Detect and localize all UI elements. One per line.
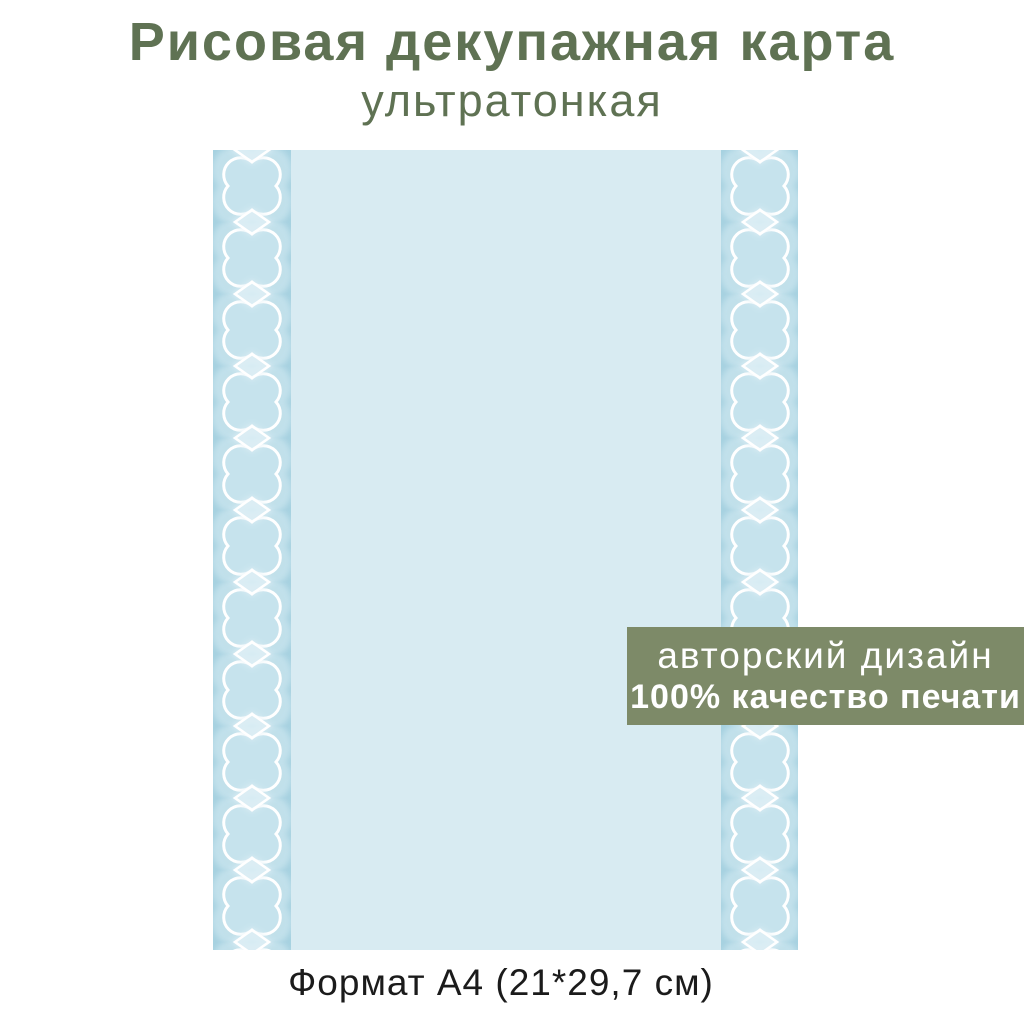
product-image: Рисовая декупажная карта ультратонкая [0,0,1024,1024]
border-pattern-left [213,150,291,950]
badge-author-design-label: авторский дизайн [657,635,993,678]
paper-borders [213,150,798,950]
paper-preview [213,150,798,950]
badge-print-quality-label: 100% качество печати [630,678,1021,717]
header: Рисовая декупажная карта ультратонкая [0,14,1024,127]
page-subtitle: ультратонкая [0,75,1024,127]
border-pattern-right [721,150,798,950]
quality-badge: авторский дизайн 100% качество печати [627,627,1024,725]
page-title: Рисовая декупажная карта [0,14,1024,71]
format-label: Формат А4 (21*29,7 см) [0,962,1002,1004]
